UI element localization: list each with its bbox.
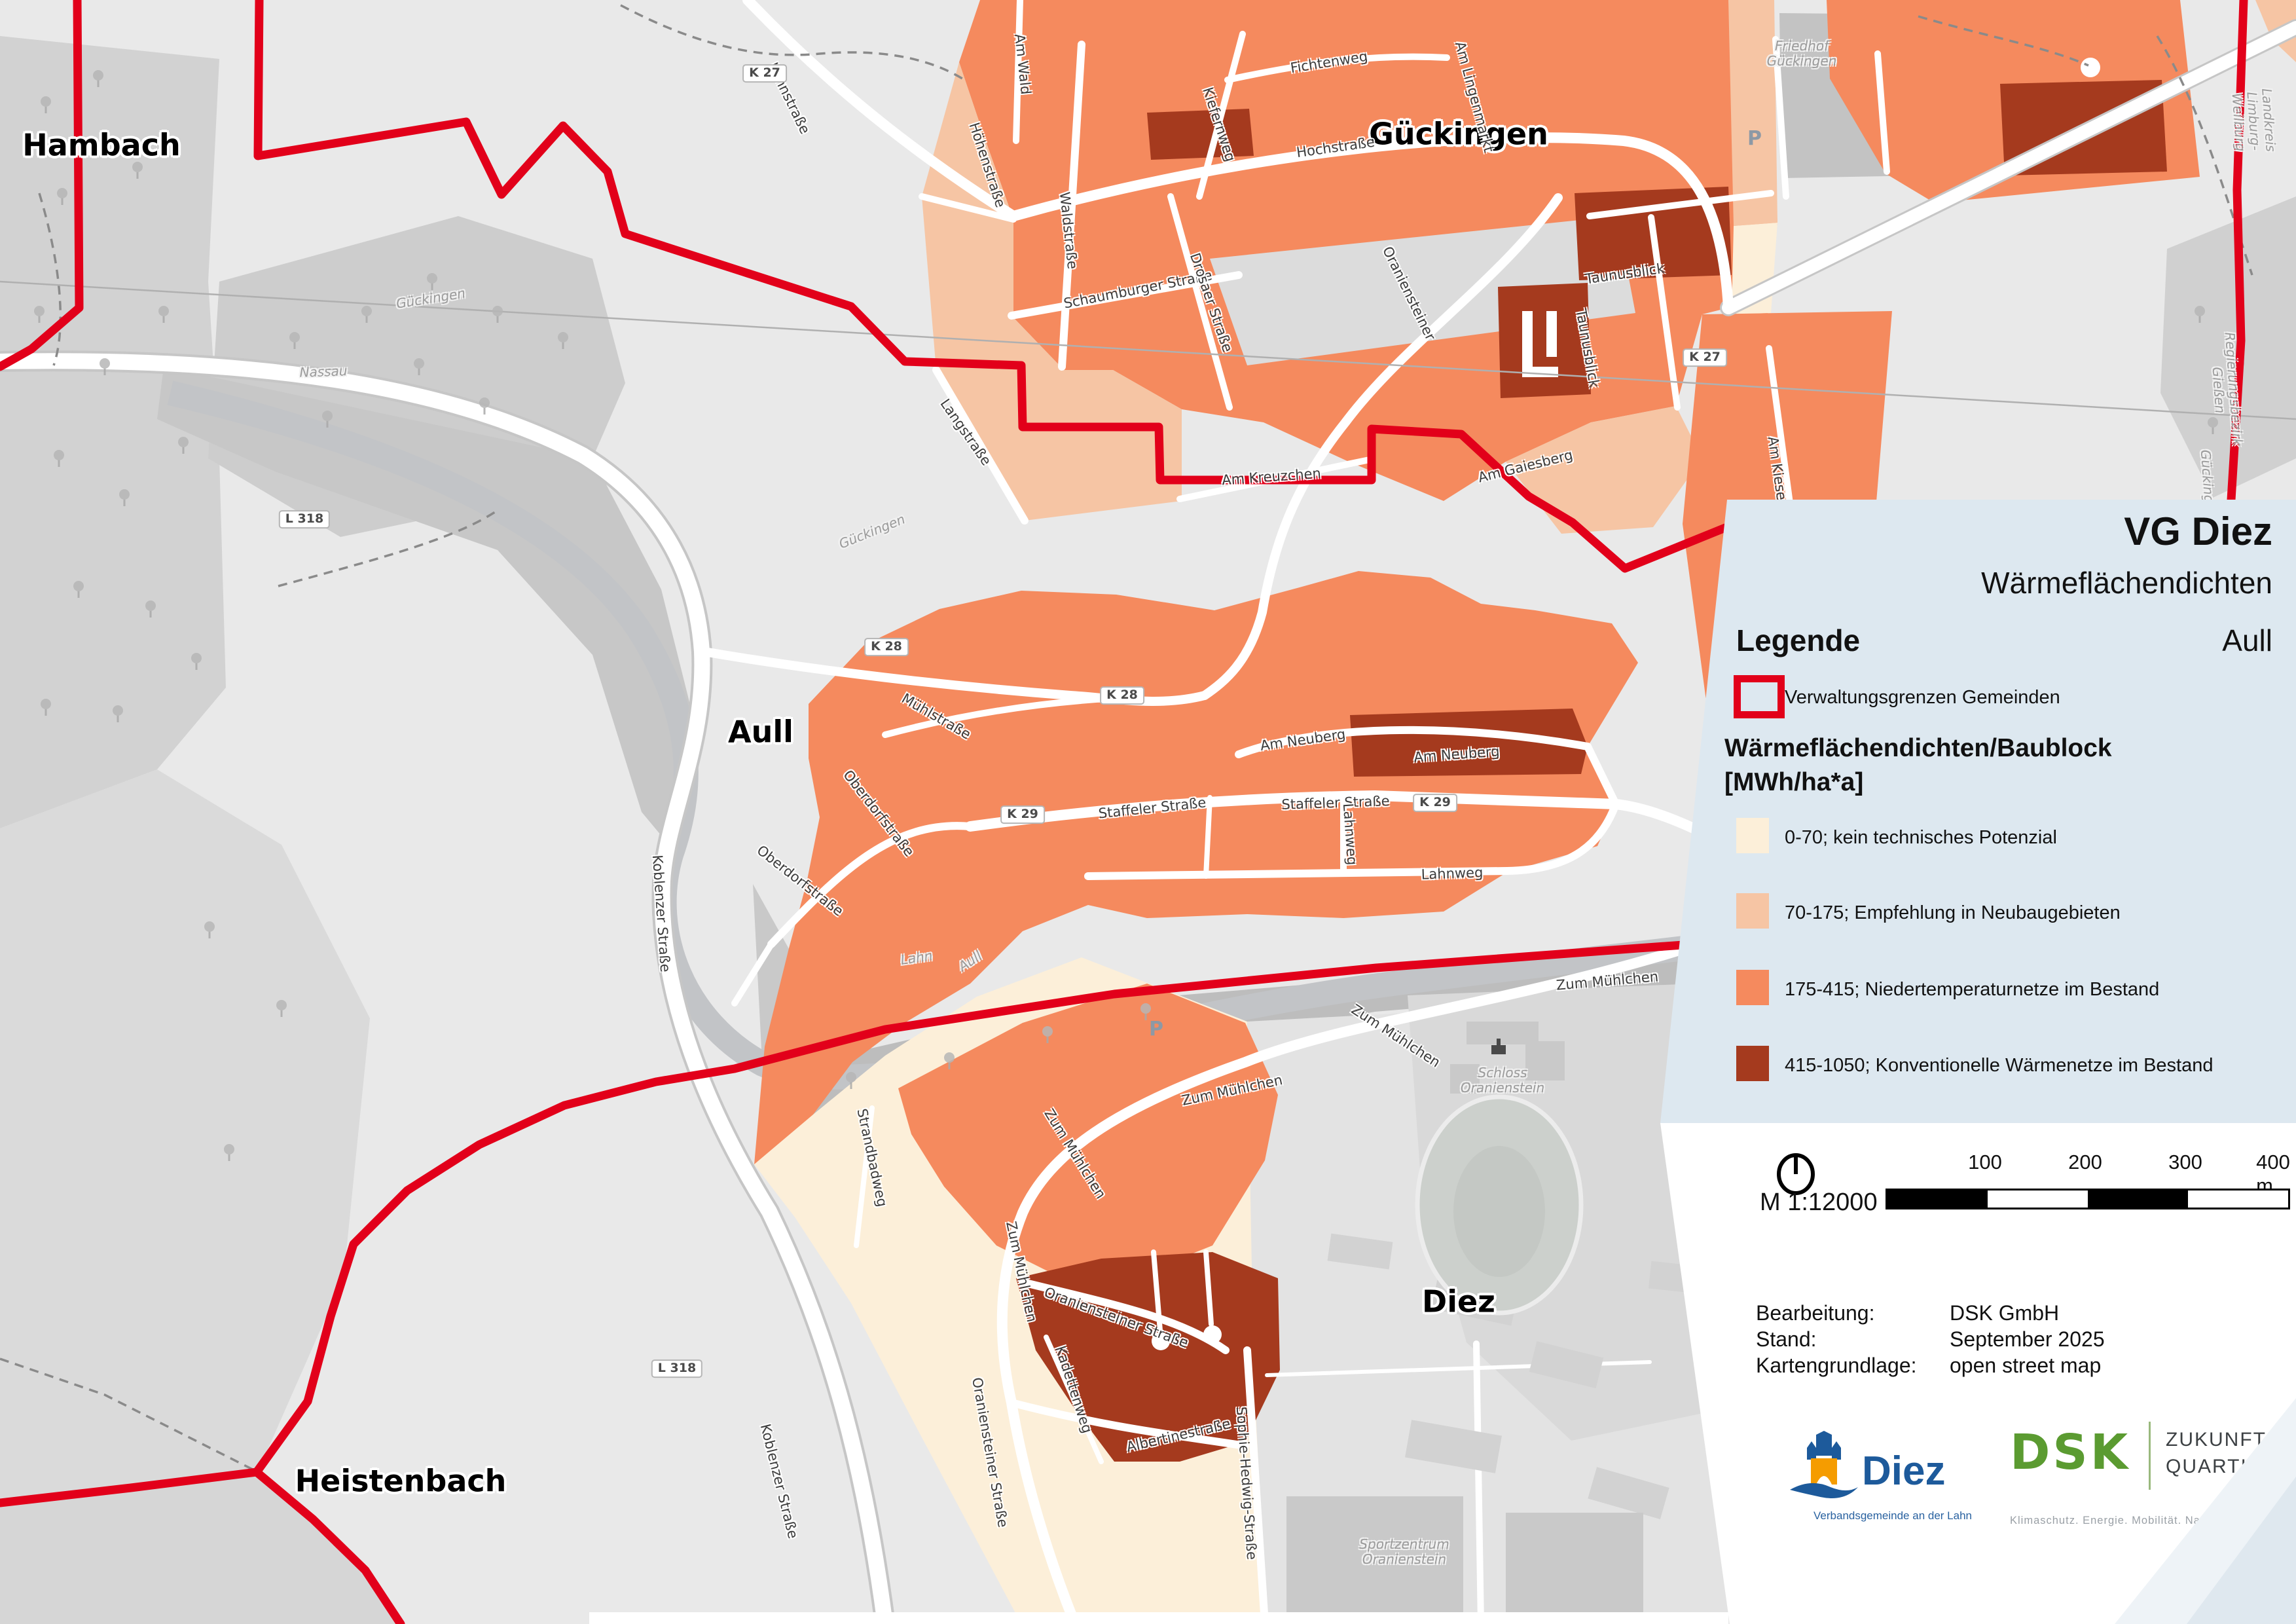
scale-tick-200: 200 [2068,1151,2102,1174]
map-label-street: Hochstraße [1296,134,1376,161]
scale-ratio: M 1:12000 [1760,1189,1878,1217]
map-label-street: Taunusblick [1584,261,1666,287]
map-label-street: Höhenstraße [966,120,1009,210]
map-label-place: Heistenbach [295,1464,507,1499]
map-label-place: Diez [1422,1285,1495,1319]
diez-tower-icon [1785,1430,1863,1508]
map-label-place: Hambach [22,128,180,163]
map-label-minor: Sportzentrum Oranienstein [1359,1537,1449,1567]
map-label-street: Kiefernweg [1199,85,1238,164]
map-label-shield: K 28 [864,638,909,656]
map-label-street: Lahnweg [1421,864,1483,882]
map-label-street: Am Neuberg [1413,743,1501,765]
map-label-shield: K 29 [1413,794,1457,812]
map-label-street: Sophie-Hedwig-Straße [1233,1406,1260,1560]
map-label-street: Schaumburger Straße [1063,267,1214,312]
map-label-picon: P [1747,128,1762,151]
dsk-logo-divider [2149,1422,2151,1490]
class-swatch-0 [1736,818,1769,853]
map-label-place: Gückingen [1369,117,1548,152]
diez-logo-name: Diez [1862,1448,1945,1494]
info-panel: 100 200 300 400 m M 1:12000 Bearbeitung:… [1656,1123,2296,1624]
scale-bar [1886,1189,2290,1209]
map-label-shield: K 27 [742,64,787,83]
map-label-street: Fichtenweg [1289,48,1368,76]
class-swatch-2 [1736,970,1769,1005]
map-label-street: Staffeler Straße [1281,793,1390,813]
scale-bar-seg [1887,1190,1988,1208]
map-area-name: Aull [2222,623,2272,658]
scale-tick-300: 300 [2168,1151,2202,1174]
map-label-minor: Aull [956,948,985,974]
class-label-3: 415-1050; Konventionelle Wärmenetze im B… [1785,1055,2214,1077]
credit-value-kartengrundlage: open street map [1950,1354,2101,1378]
class-swatch-1 [1736,893,1769,929]
credit-label-kartengrundlage: Kartengrundlage: [1756,1354,1917,1378]
credit-label-stand: Stand: [1756,1327,1817,1352]
map-label-street: Zum Mühlchen [1041,1106,1108,1202]
map-label-street: Koblenzer Straße [649,855,674,973]
map-label-street: Albertinestraße [1125,1416,1231,1455]
map-label-minor: Nassau [299,363,348,380]
map-label-street: Taunusblick [1573,308,1603,389]
scale-bar-seg [1988,1190,2088,1208]
map-label-minor: Gückingen [395,286,467,311]
map-label-street: Zum Mühlchen [1003,1220,1040,1323]
map-label-street: Zum Mühlchen [1556,969,1659,993]
map-label-street: Strandbadweg [854,1107,890,1208]
map-label-street: Lahnweg [1340,803,1360,866]
map-label-street: Staffeler Straße [1098,794,1207,821]
boundary-label: Verwaltungsgrenzen Gemeinden [1785,687,2060,709]
map-label-street: Waldstraße [1057,191,1080,270]
map-label-place: Aull [728,715,793,750]
map-label-minor: Regierungsbezirk Gießen [2207,331,2245,447]
map-label-street: Kadettenweg [1052,1344,1095,1435]
map-label-street: Am Wald [1011,33,1034,96]
map-label-street: Am Kreuzchen [1221,466,1321,489]
map-label-street: Am Gaiesberg [1476,447,1575,485]
map-label-street: Am Kiesel [1765,435,1790,505]
map-label-shield: K 28 [1100,686,1144,705]
map-label-minor: Gückingen [837,511,907,551]
map-label-street: Zum Mühlchen [1180,1072,1284,1109]
class-swatch-3 [1736,1046,1769,1081]
map-label-picon: P [1149,1018,1163,1041]
density-heading-line1: Wärmeflächendichten/Baublock [1724,734,2112,763]
map-label-minor: Friedhof Gückingen [1767,39,1837,69]
scale-bar-seg [2188,1190,2288,1208]
map-title: VG Diez [2124,509,2272,554]
map-label-shield: L 318 [279,510,330,528]
density-heading-line2: [MWh/ha*a] [1724,768,1863,797]
map-label-street: Oberdorfstraße [840,767,917,859]
map-label-minor: Landkreis Limburg-Weilburg [2229,88,2278,154]
map-label-street: Langstraße [937,396,994,469]
map-label-minor: Schloss Oranienstein [1461,1065,1544,1096]
map-label-minor: Lahn [900,948,933,968]
legend-heading: Legende [1736,623,1860,658]
map-label-street: Am Neuberg [1259,726,1346,754]
credit-label-bearbeitung: Bearbeitung: [1756,1301,1874,1325]
credit-value-bearbeitung: DSK GmbH [1950,1301,2059,1325]
credit-value-stand: September 2025 [1950,1327,2105,1352]
map-label-street: Koblenzer Straße [757,1422,801,1540]
diez-logo: Diez Verbandsgemeinde an der Lahn [1785,1430,1994,1541]
dsk-logo-name: DSK [2010,1424,2130,1481]
map-label-street: Drosaer Straße [1187,251,1235,354]
map-label-street: Oberdorfstraße [754,842,846,919]
map-label-street: Mühlstraße [899,690,974,743]
map-export-page: HambachGückingenAullDiezHeistenbachHochs… [0,0,2296,1624]
map-label-shield: L 318 [651,1359,702,1378]
map-label-shield: K 27 [1683,348,1727,367]
map-label-street: Zum Mühlchen [1349,1001,1443,1070]
legend-panel: VG Diez Wärmeflächendichten Aull Legende… [1656,500,2296,1123]
class-label-2: 175-415; Niedertemperaturnetze im Bestan… [1785,979,2159,1001]
class-label-0: 0-70; kein technisches Potenzial [1785,827,2057,849]
map-label-street: Oraniensteiner Straße [969,1376,1011,1529]
boundary-swatch-icon [1734,675,1785,718]
map-label-street: Oraniensteiner [1379,244,1438,343]
scale-tick-100: 100 [1968,1151,2002,1174]
diez-logo-tagline: Verbandsgemeinde an der Lahn [1785,1509,2001,1522]
map-label-street: Oraniensteiner Straße [1042,1284,1190,1351]
map-label-shield: K 29 [1000,805,1045,824]
map-subtitle: Wärmeflächendichten [1981,565,2272,600]
class-label-1: 70-175; Empfehlung in Neubaugebieten [1785,902,2121,924]
scale-bar-seg [2088,1190,2188,1208]
